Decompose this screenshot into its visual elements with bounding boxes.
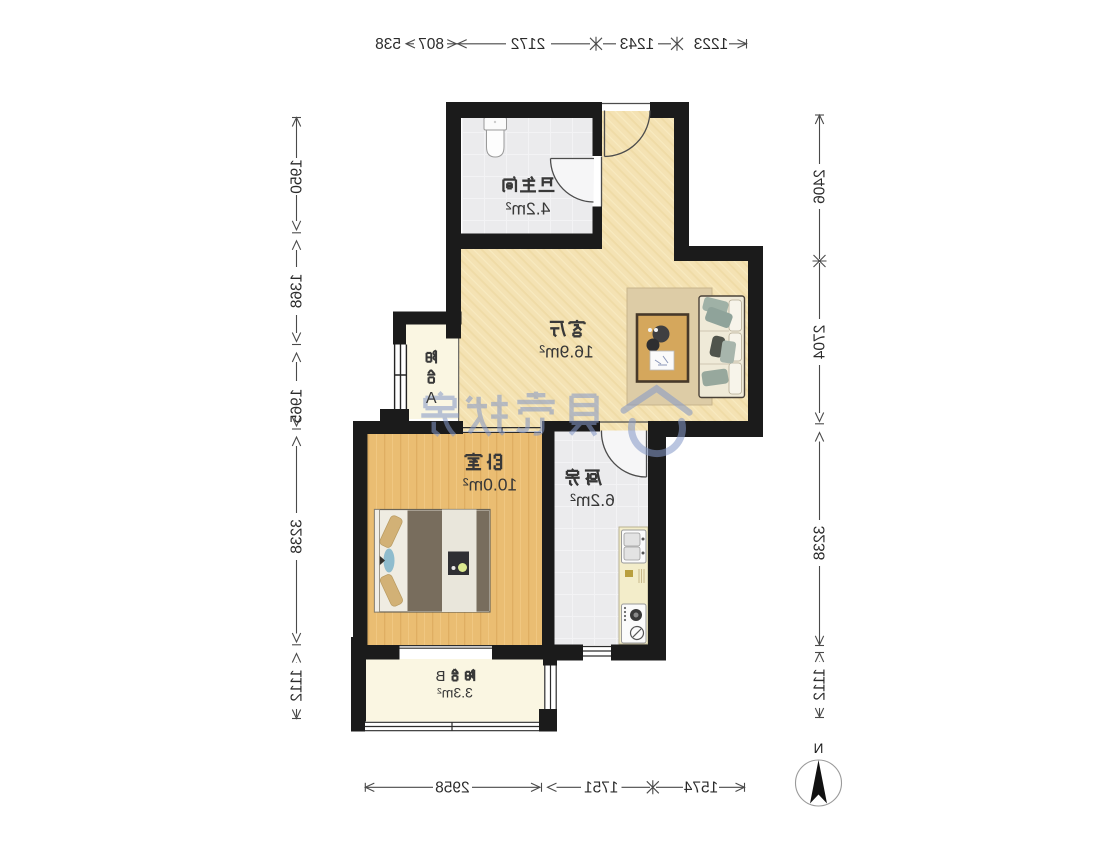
svg-text:1112: 1112 [289,669,306,701]
svg-text:1965: 1965 [289,389,306,423]
svg-text:2704: 2704 [812,325,829,360]
svg-text:1950: 1950 [289,159,306,194]
svg-text:3.3m²: 3.3m² [437,684,473,700]
svg-text:3238: 3238 [812,526,829,560]
svg-text:538: 538 [375,36,401,53]
svg-text:2406: 2406 [812,169,829,203]
svg-text:1368: 1368 [289,274,306,308]
svg-text:B: B [435,668,445,685]
svg-text:2958: 2958 [435,779,469,796]
svg-text:6.2m²: 6.2m² [570,490,615,510]
svg-text:16.9m²: 16.9m² [539,341,594,361]
svg-text:A: A [426,390,437,407]
svg-text:10.0m²: 10.0m² [463,475,518,495]
svg-text:1751: 1751 [584,779,618,796]
svg-text:1243: 1243 [620,36,654,53]
svg-text:1112: 1112 [812,668,829,700]
svg-text:2172: 2172 [511,36,545,53]
svg-text:N: N [814,741,824,756]
svg-text:1223: 1223 [694,36,728,53]
svg-text:1574: 1574 [683,779,718,796]
svg-text:807: 807 [418,36,444,53]
svg-text:3238: 3238 [289,519,306,553]
svg-text:4.2m²: 4.2m² [505,199,550,219]
